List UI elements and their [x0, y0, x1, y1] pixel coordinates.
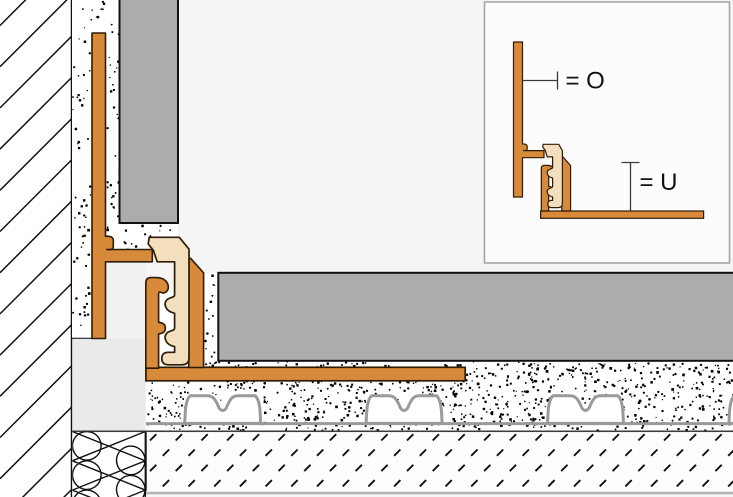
svg-text:= O: = O [566, 68, 605, 95]
svg-text:= U: = U [640, 169, 678, 196]
